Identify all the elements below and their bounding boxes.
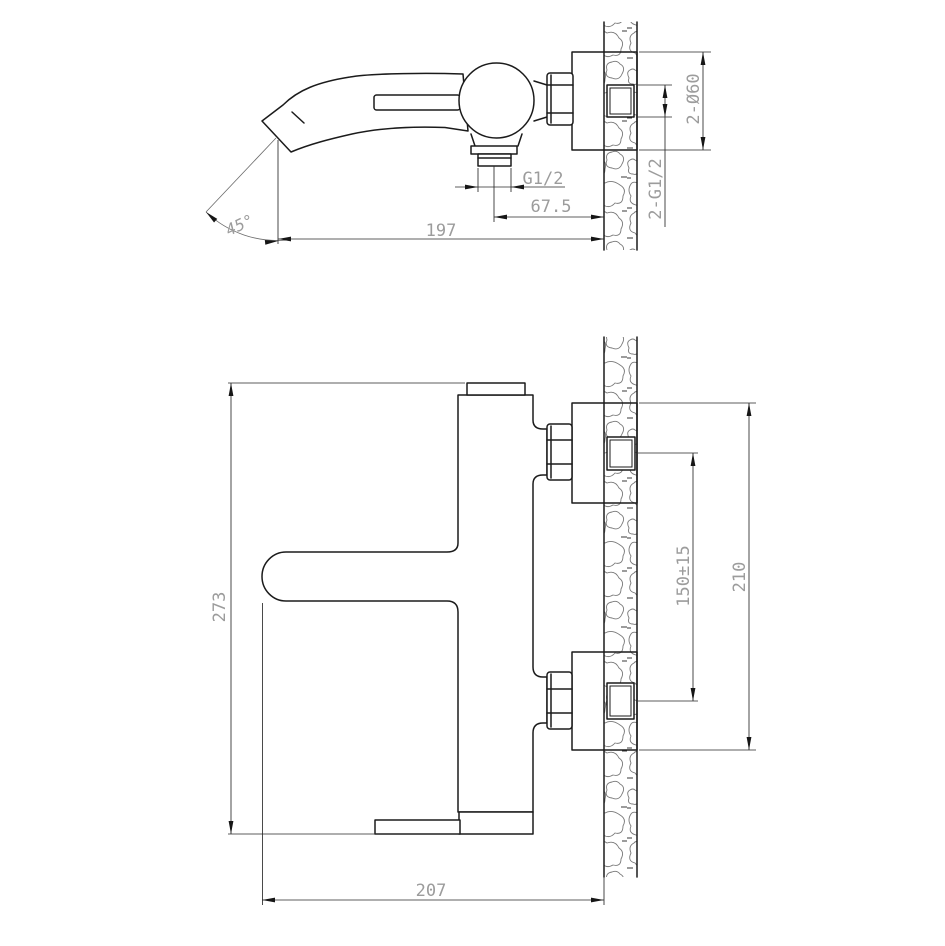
body-top-cap — [467, 383, 525, 395]
faucet-technical-drawing: 45° 197 67.5 G1/2 — [0, 0, 945, 946]
side-view: 45° 197 67.5 G1/2 — [204, 22, 711, 250]
lower-hex-nut — [547, 672, 572, 729]
outlet-stub — [478, 154, 511, 166]
upper-hex-nut — [547, 424, 572, 480]
plate-span-label: 210 — [730, 562, 750, 593]
faucet-body — [262, 63, 573, 166]
escutcheons-label: 2-Ø60 — [684, 73, 704, 124]
inlet-spacing-label: 150±15 — [674, 545, 694, 606]
outlet-thread-label: G1/2 — [523, 169, 564, 189]
dim-inlet-spacing: 150±15 — [638, 453, 698, 701]
inlet-fitting — [607, 85, 634, 117]
spout-end-cap — [459, 812, 533, 834]
wall-section — [604, 337, 637, 877]
front-view-rotated: 273 207 150±15 210 — [210, 337, 756, 905]
dim-spout-reach: 197 — [278, 140, 604, 244]
dim-total-reach: 207 — [262, 603, 604, 905]
outlet-offset-label: 67.5 — [531, 197, 572, 217]
wall-section — [604, 22, 637, 250]
wall-hatch — [604, 337, 637, 877]
connector-neck — [534, 81, 547, 121]
inlet-threads-label: 2-G1/2 — [646, 158, 666, 219]
outlet-flange — [471, 146, 517, 154]
total-reach-label: 207 — [416, 881, 447, 901]
dim-outlet-thread: G1/2 — [455, 168, 565, 192]
dim-escutcheons: 2-Ø60 — [639, 52, 711, 150]
dim-plate-span: 210 — [639, 403, 756, 750]
upper-inlet-fitting — [607, 437, 635, 470]
spout-angle-label: 45° — [223, 210, 257, 239]
handle-lever — [374, 95, 460, 110]
body-outline — [262, 395, 547, 812]
dim-total-height: 273 — [210, 383, 465, 834]
dim-inlet-threads: 2-G1/2 — [637, 85, 672, 227]
lower-inlet-fitting — [607, 683, 634, 719]
wall-hatch — [604, 22, 637, 250]
spout-reach-label: 197 — [426, 221, 457, 241]
spout-aerator — [375, 820, 460, 834]
total-height-label: 273 — [210, 592, 230, 623]
technical-drawing-sheet: 45° 197 67.5 G1/2 — [0, 0, 945, 946]
hex-nut — [547, 73, 573, 125]
cartridge-housing — [459, 63, 534, 138]
faucet-body — [262, 383, 572, 834]
dim-spout-angle: 45° — [204, 138, 288, 245]
